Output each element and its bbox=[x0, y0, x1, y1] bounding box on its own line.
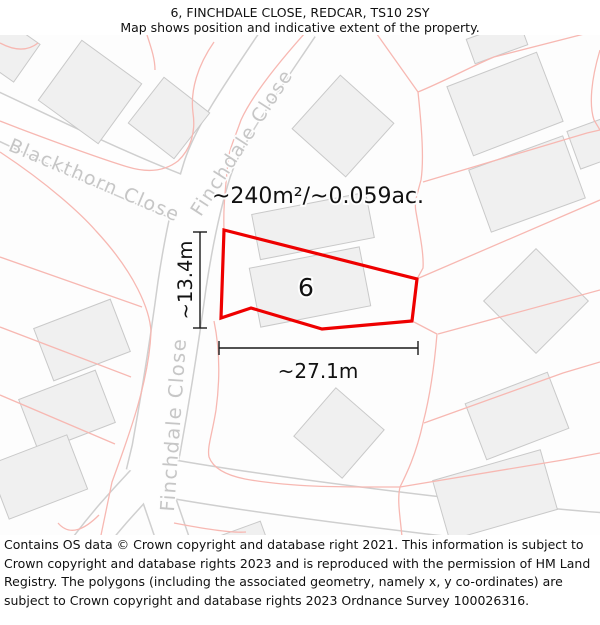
plot-number-label: 6 bbox=[298, 273, 314, 302]
map-svg: Blackthorn Close Finchdale Close Finchda… bbox=[0, 35, 600, 535]
property-map-page: 6, FINCHDALE CLOSE, REDCAR, TS10 2SY Map… bbox=[0, 0, 600, 625]
page-title: 6, FINCHDALE CLOSE, REDCAR, TS10 2SY bbox=[0, 0, 600, 20]
copyright-text: Contains OS data © Crown copyright and d… bbox=[0, 535, 600, 610]
area-label: ~240m²/~0.059ac. bbox=[212, 184, 424, 209]
page-subtitle: Map shows position and indicative extent… bbox=[0, 20, 600, 35]
page-header: 6, FINCHDALE CLOSE, REDCAR, TS10 2SY Map… bbox=[0, 0, 600, 35]
height-dimension-label: ~13.4m bbox=[174, 241, 197, 320]
attribution-footer: Contains OS data © Crown copyright and d… bbox=[0, 535, 600, 625]
width-dimension-label: ~27.1m bbox=[278, 359, 359, 383]
map-canvas: Blackthorn Close Finchdale Close Finchda… bbox=[0, 35, 600, 535]
